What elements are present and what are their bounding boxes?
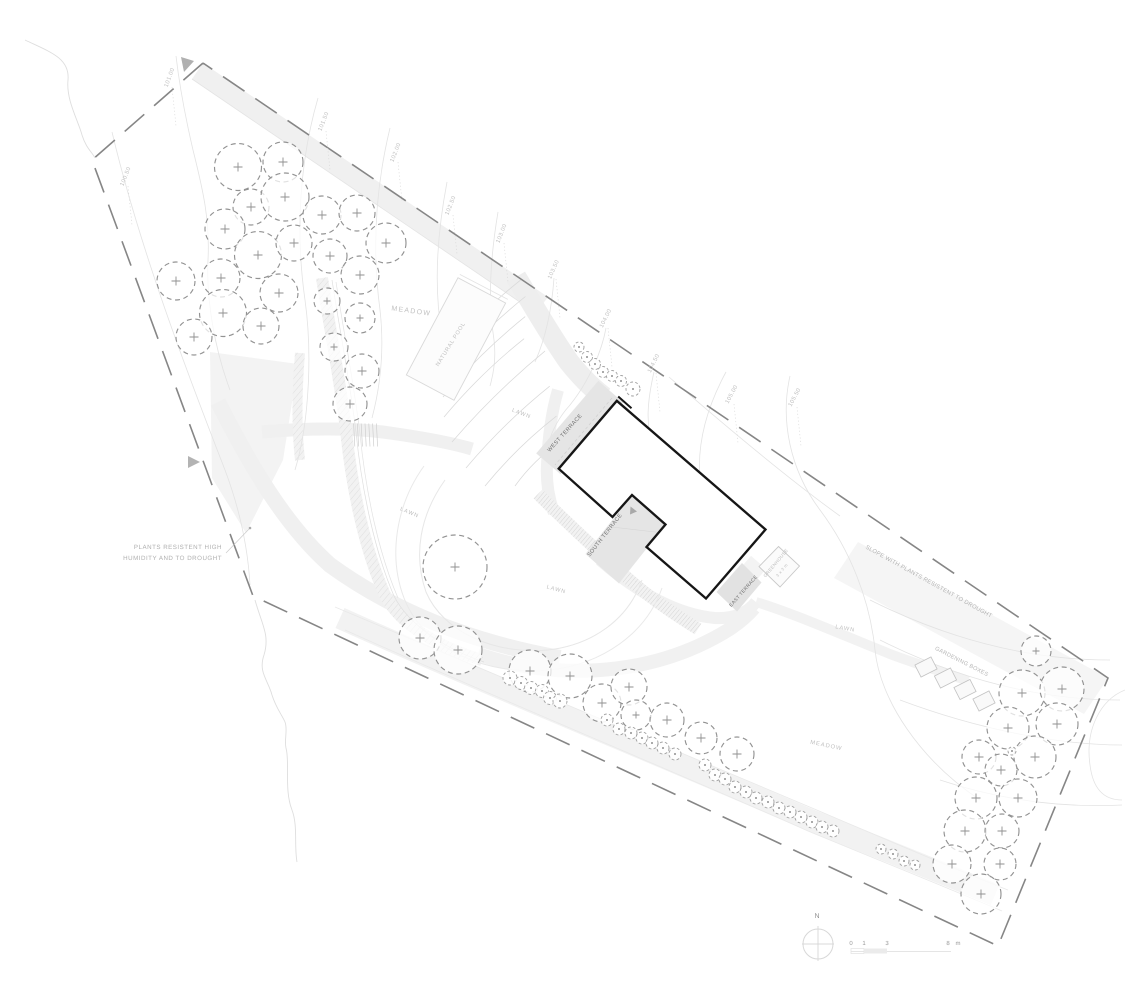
svg-text:N: N — [814, 913, 819, 920]
svg-text:PLANTS RESISTENT HIGH: PLANTS RESISTENT HIGH — [134, 544, 222, 551]
svg-text:m: m — [956, 941, 961, 947]
svg-text:HUMIDITY AND TO DROUGHT: HUMIDITY AND TO DROUGHT — [123, 555, 222, 562]
